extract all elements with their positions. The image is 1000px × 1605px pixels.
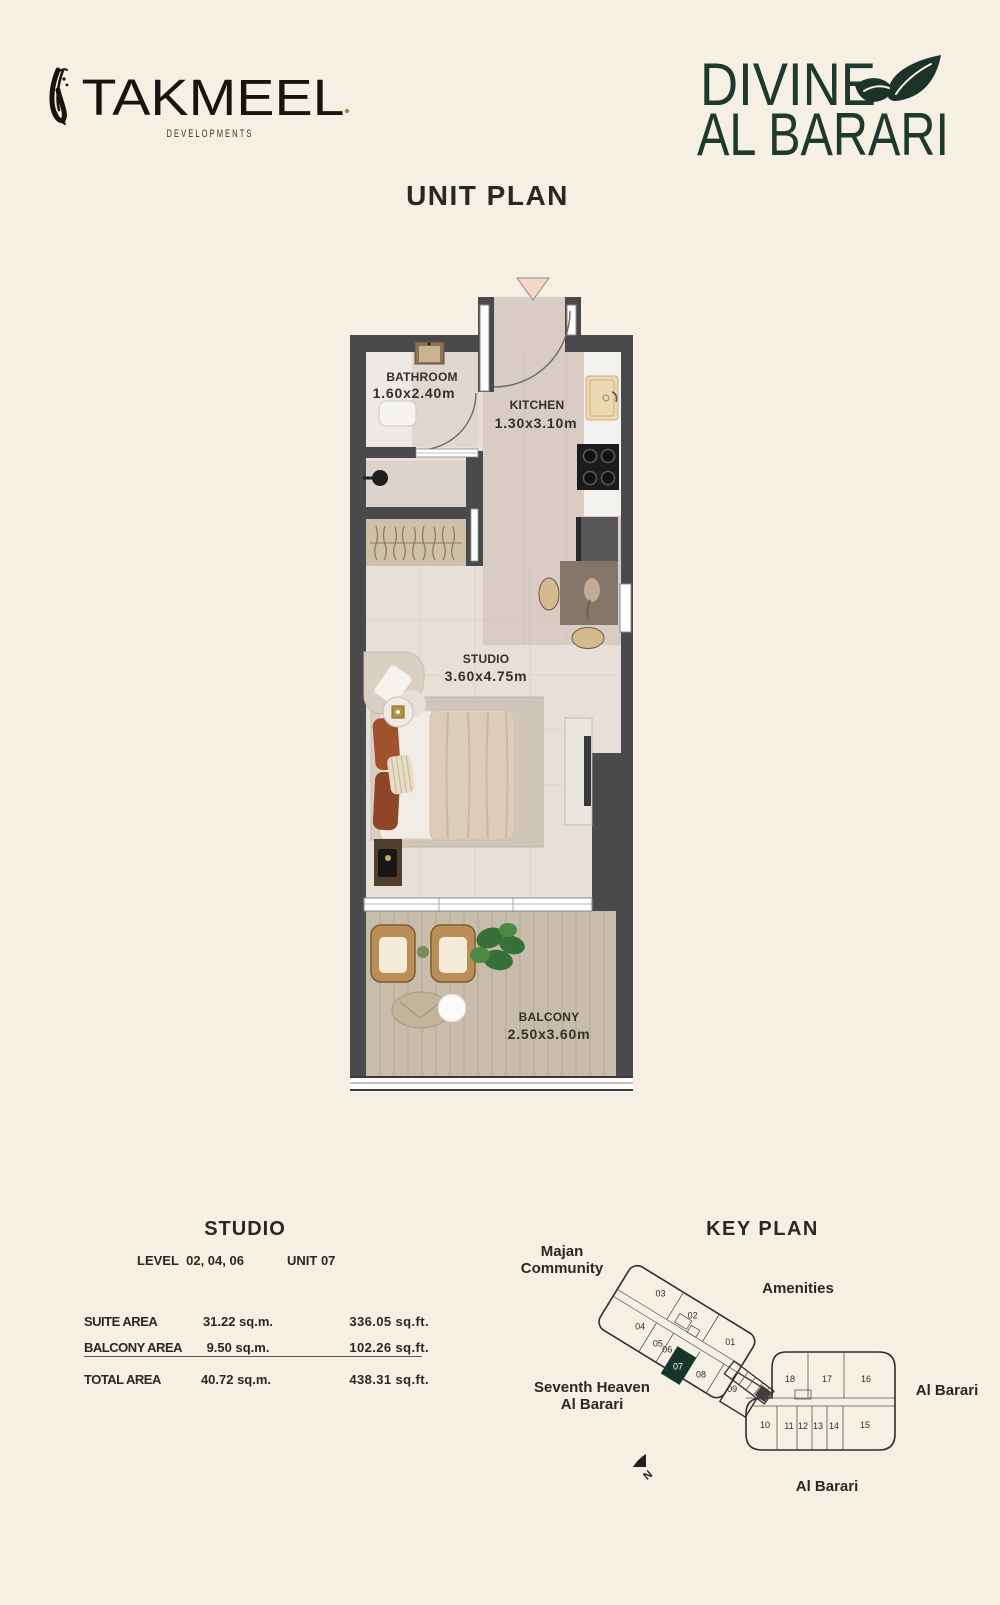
svg-text:N: N — [641, 1468, 655, 1480]
svg-text:09: 09 — [727, 1384, 737, 1394]
svg-text:06: 06 — [662, 1344, 672, 1354]
svg-text:2.50x3.60m: 2.50x3.60m — [508, 1026, 591, 1042]
svg-text:03: 03 — [655, 1288, 665, 1298]
svg-text:BALCONY: BALCONY — [519, 1010, 580, 1024]
svg-text:STUDIO: STUDIO — [463, 652, 510, 666]
svg-text:15: 15 — [860, 1420, 870, 1430]
svg-text:14: 14 — [829, 1421, 839, 1431]
svg-text:13: 13 — [813, 1421, 823, 1431]
svg-text:3.60x4.75m: 3.60x4.75m — [445, 668, 528, 684]
svg-text:16: 16 — [861, 1374, 871, 1384]
svg-text:BATHROOM: BATHROOM — [386, 370, 457, 384]
svg-text:01: 01 — [725, 1337, 735, 1347]
svg-text:TAKMEEL: TAKMEEL — [82, 69, 345, 126]
svg-text:04: 04 — [635, 1322, 645, 1332]
svg-text:18: 18 — [785, 1374, 795, 1384]
svg-text:10: 10 — [760, 1420, 770, 1430]
svg-text:11: 11 — [784, 1421, 793, 1431]
svg-text:1.60x2.40m: 1.60x2.40m — [373, 385, 456, 401]
svg-text:08: 08 — [696, 1370, 706, 1380]
svg-text:12: 12 — [798, 1421, 808, 1431]
svg-text:1.30x3.10m: 1.30x3.10m — [495, 415, 578, 431]
svg-text:17: 17 — [822, 1374, 832, 1384]
svg-text:AL BARARI: AL BARARI — [697, 101, 949, 160]
svg-text:KITCHEN: KITCHEN — [510, 398, 565, 412]
svg-text:02: 02 — [688, 1311, 698, 1321]
svg-text:07: 07 — [673, 1361, 683, 1371]
svg-text:DEVELOPMENTS: DEVELOPMENTS — [167, 128, 254, 140]
